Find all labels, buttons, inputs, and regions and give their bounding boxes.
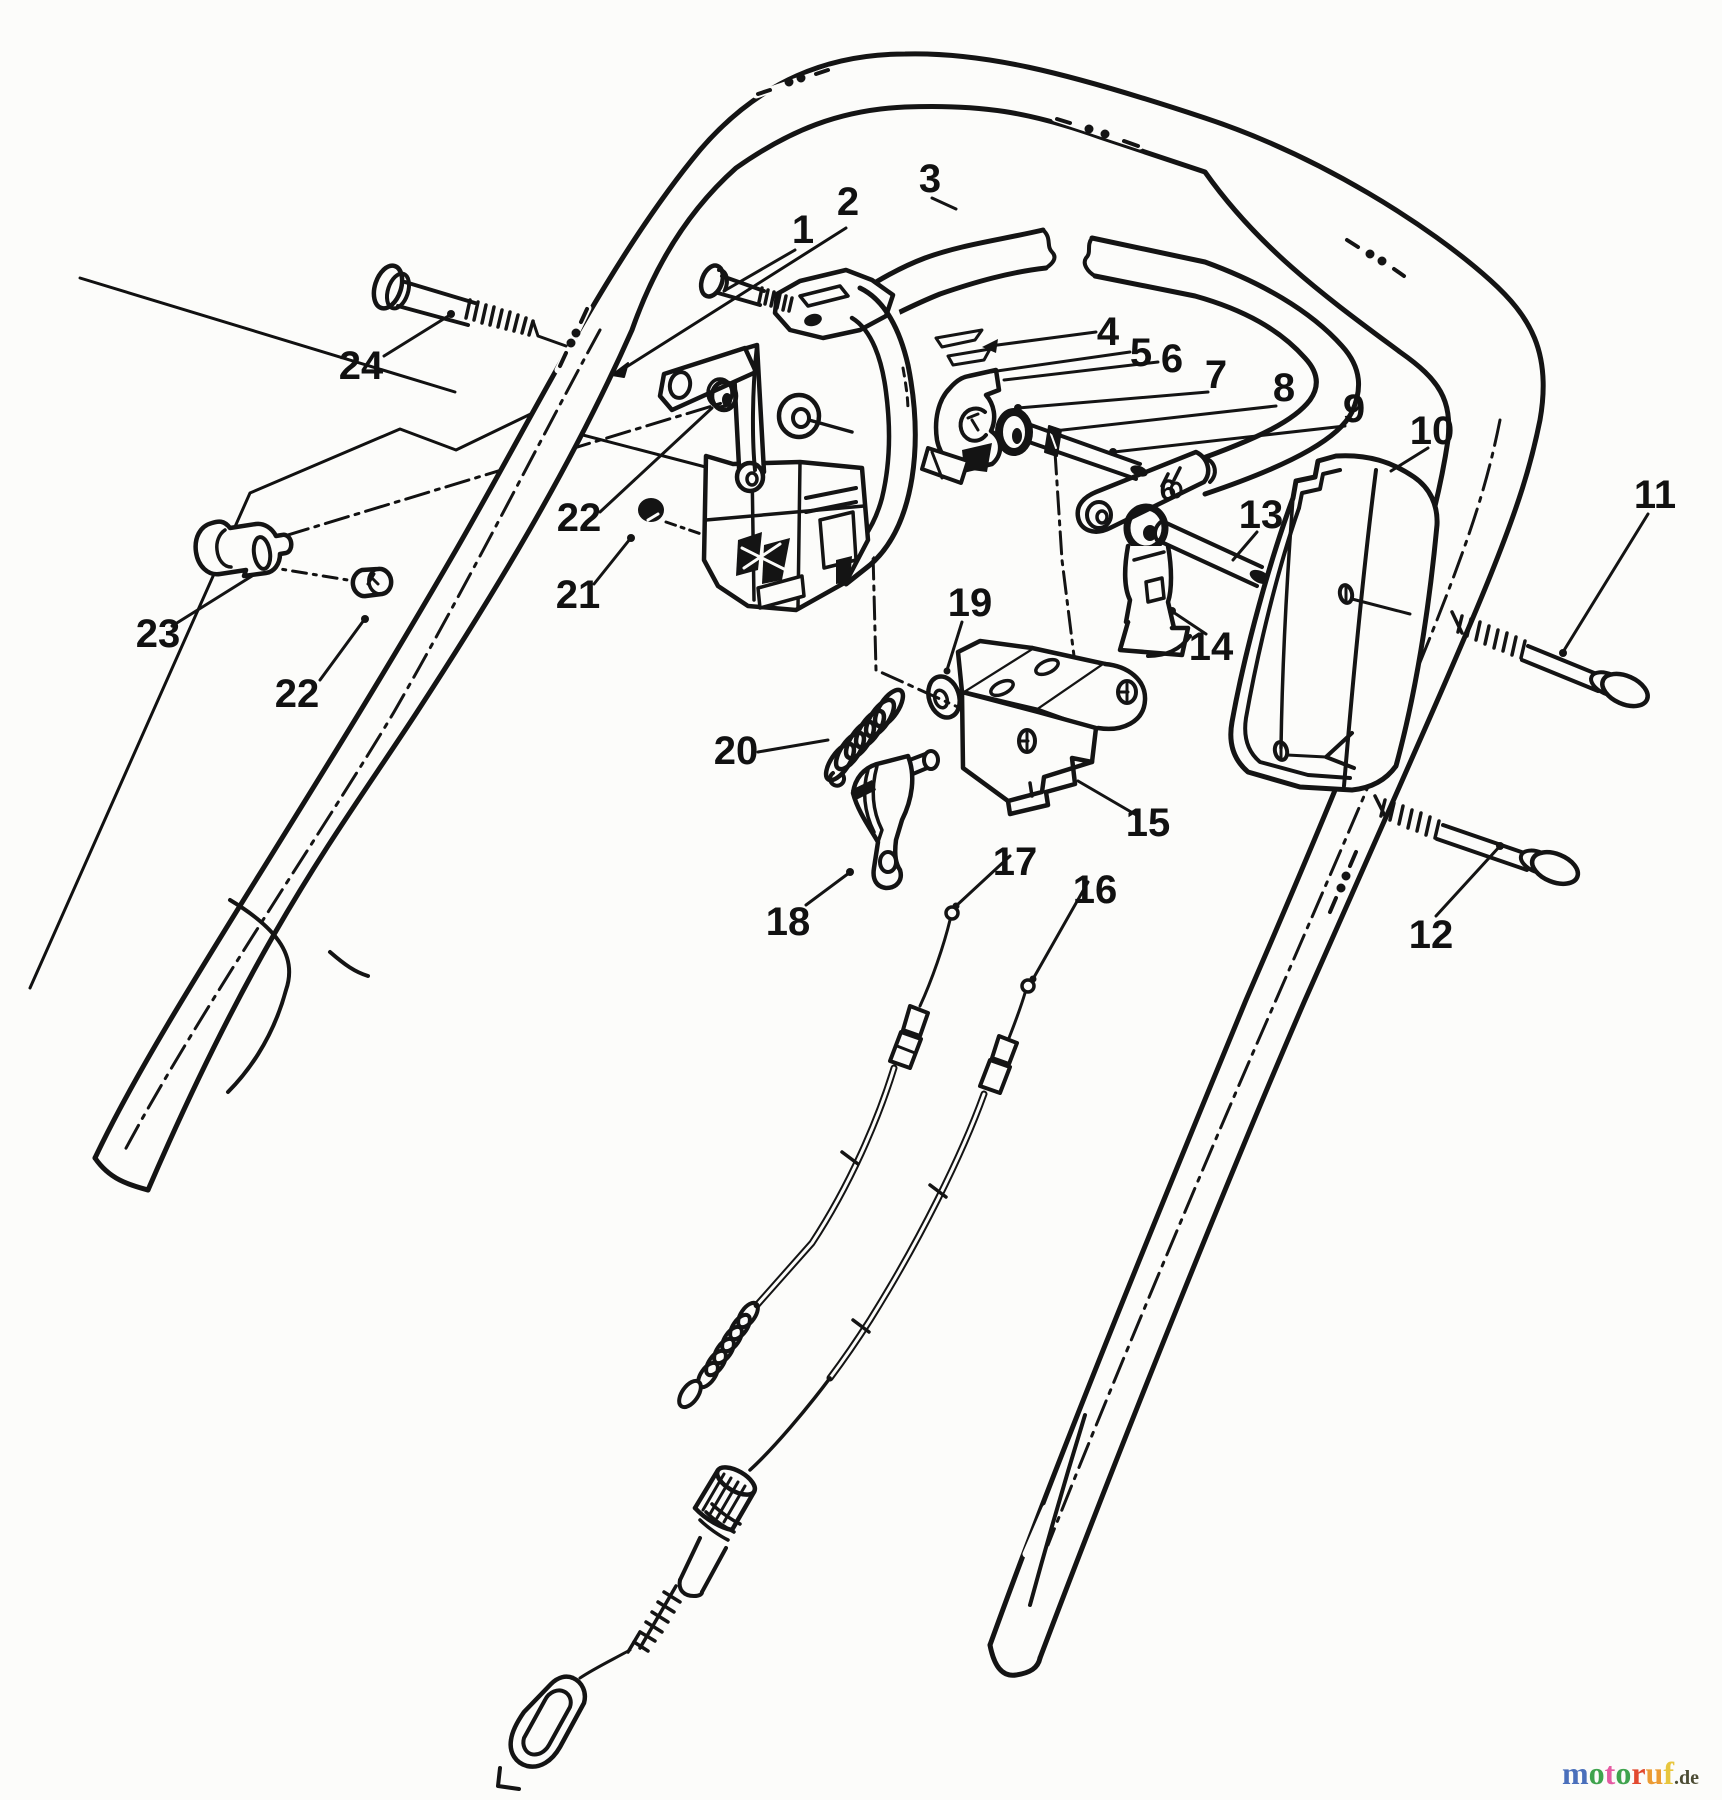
svg-text:9: 9 — [1343, 387, 1365, 431]
svg-text:7: 7 — [1205, 353, 1227, 397]
svg-text:22: 22 — [557, 496, 602, 540]
svg-text:10: 10 — [1410, 409, 1455, 453]
svg-text:4: 4 — [1097, 310, 1120, 354]
svg-text:17: 17 — [993, 840, 1038, 884]
svg-text:23: 23 — [136, 612, 181, 656]
svg-text:2: 2 — [837, 180, 859, 224]
svg-text:19: 19 — [948, 581, 993, 625]
svg-text:8: 8 — [1273, 366, 1295, 410]
svg-text:18: 18 — [766, 900, 811, 944]
svg-text:16: 16 — [1073, 868, 1118, 912]
svg-text:6: 6 — [1161, 337, 1183, 381]
svg-text:21: 21 — [556, 573, 601, 617]
svg-text:5: 5 — [1130, 331, 1152, 375]
svg-text:15: 15 — [1126, 801, 1171, 845]
svg-text:12: 12 — [1409, 913, 1454, 957]
svg-text:3: 3 — [919, 157, 941, 201]
svg-text:11: 11 — [1634, 473, 1676, 517]
svg-text:20: 20 — [714, 729, 759, 773]
svg-text:22: 22 — [275, 672, 320, 716]
svg-text:1: 1 — [792, 208, 814, 252]
svg-text:14: 14 — [1189, 625, 1234, 669]
svg-text:24: 24 — [339, 344, 384, 388]
svg-text:13: 13 — [1239, 493, 1284, 537]
svg-text:6: 6 — [1160, 474, 1177, 507]
